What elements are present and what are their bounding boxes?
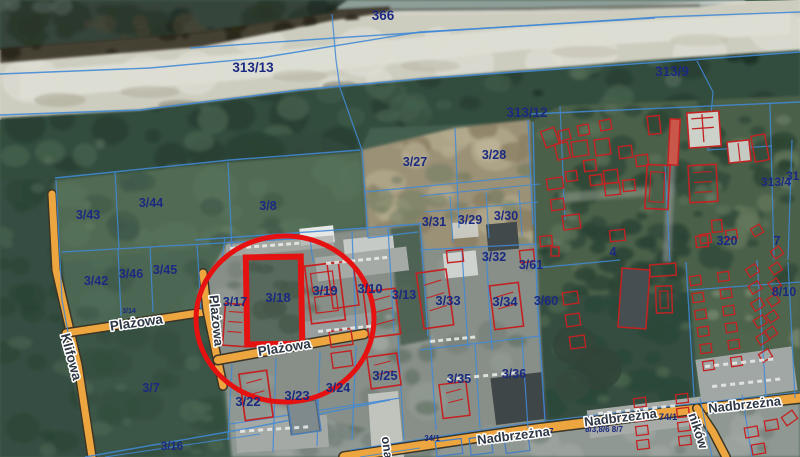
svg-text:3/45: 3/45 (153, 263, 177, 277)
svg-text:3/42: 3/42 (84, 274, 108, 288)
svg-text:3/32: 3/32 (482, 250, 506, 264)
svg-text:3/10: 3/10 (357, 281, 382, 296)
svg-text:3/27: 3/27 (403, 155, 427, 169)
svg-text:3/22: 3/22 (235, 394, 260, 409)
svg-text:3/46: 3/46 (119, 267, 143, 281)
svg-text:3/24: 3/24 (326, 381, 350, 395)
svg-text:3/25: 3/25 (372, 368, 397, 383)
svg-text:313/9: 313/9 (655, 64, 689, 79)
svg-text:3/14: 3/14 (122, 308, 136, 315)
svg-text:3/16: 3/16 (161, 441, 183, 453)
svg-text:3/19: 3/19 (312, 283, 337, 298)
svg-text:313/13: 313/13 (232, 60, 274, 75)
svg-text:4: 4 (610, 245, 617, 259)
svg-text:3/36: 3/36 (502, 367, 526, 381)
svg-text:3/60: 3/60 (534, 294, 558, 308)
svg-text:3/31: 3/31 (422, 215, 446, 229)
svg-text:74/1: 74/1 (659, 412, 678, 423)
svg-text:315: 315 (786, 169, 800, 183)
svg-text:3/34: 3/34 (492, 294, 518, 309)
svg-text:3/33: 3/33 (435, 293, 460, 308)
svg-text:7: 7 (774, 234, 781, 248)
svg-text:3/8: 3/8 (259, 199, 276, 213)
svg-text:3/23: 3/23 (284, 388, 309, 403)
svg-text:3/61: 3/61 (519, 258, 543, 272)
svg-text:3/35: 3/35 (447, 372, 471, 386)
svg-text:3/28: 3/28 (482, 148, 506, 162)
svg-text:3/7: 3/7 (142, 381, 159, 395)
svg-text:366: 366 (372, 8, 395, 23)
svg-text:8/10: 8/10 (772, 285, 796, 299)
svg-text:34/1: 34/1 (424, 434, 440, 443)
svg-text:3/13: 3/13 (392, 288, 416, 302)
svg-text:ona: ona (379, 436, 396, 457)
svg-text:3/17: 3/17 (223, 295, 247, 309)
svg-text:3/29: 3/29 (458, 213, 482, 227)
svg-text:3/18: 3/18 (265, 290, 290, 305)
svg-text:320: 320 (717, 234, 738, 248)
svg-text:313/12: 313/12 (506, 105, 547, 120)
svg-text:3/43: 3/43 (76, 208, 100, 222)
svg-text:3/44: 3/44 (139, 196, 163, 210)
svg-text:3/30: 3/30 (494, 209, 518, 223)
